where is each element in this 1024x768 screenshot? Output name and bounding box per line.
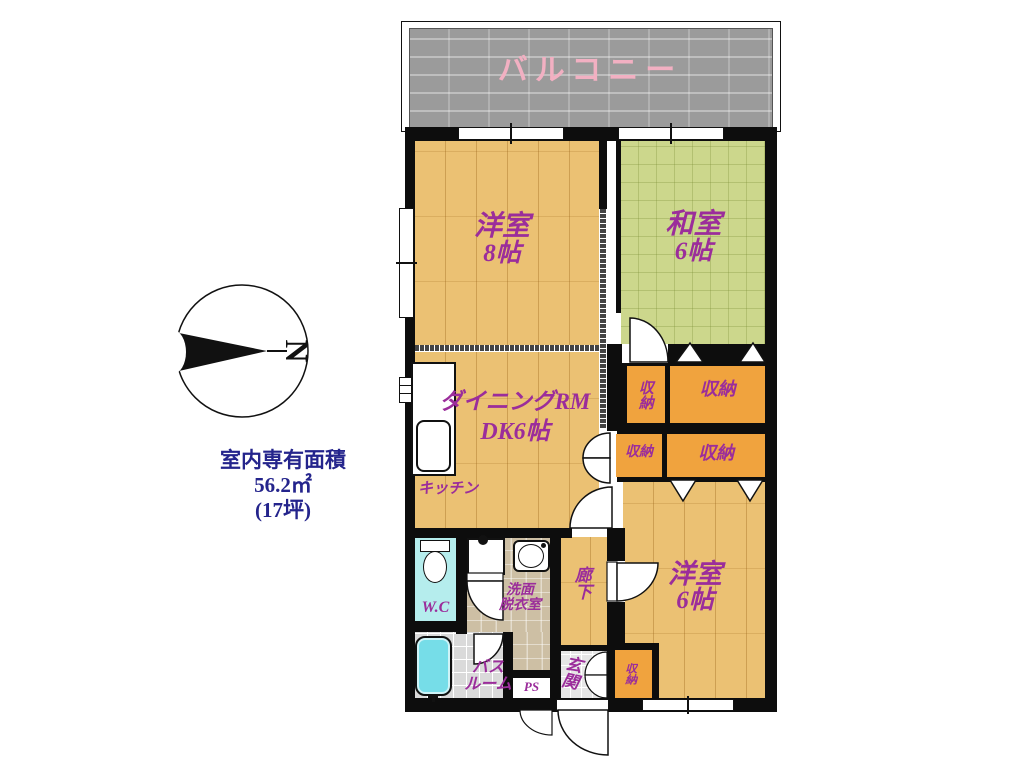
room-japanese-6-name: 和室 (665, 209, 721, 240)
room-western-6-name: 洋室 (668, 559, 722, 589)
door-arc-entrance (558, 710, 608, 755)
storage-3-label: 収納 (616, 446, 662, 461)
door-arc-genkan-bottom (585, 675, 607, 698)
area-title: 室内専有面積 (188, 448, 378, 473)
dining-label: ダイニングRM DK6帖 (425, 390, 605, 445)
door-leaf-washroom (467, 573, 503, 581)
room-western-8-name: 洋室 (474, 211, 530, 242)
storage-4-label: 収納 (667, 444, 765, 463)
plan-overlay: N (0, 0, 1024, 768)
wc-label: W.C (413, 600, 458, 617)
area-size-tsubo: (17坪) (188, 498, 378, 523)
dining-line2: DK6帖 (480, 419, 549, 445)
door-arc-dk-hallway (570, 487, 612, 528)
bifold-triangle-j2 (740, 343, 765, 362)
room-western-8-size: 8帖 (483, 240, 521, 267)
washroom-line2: 脱衣室 (499, 598, 541, 613)
floor-plan: バルコニー (0, 0, 1024, 768)
bathroom-line1: バス (472, 659, 504, 676)
room-western-6-label: 洋室 6帖 (630, 560, 760, 615)
storage-1-label: 収納 (636, 371, 652, 419)
storage-entrance-label: 収納 (624, 655, 637, 694)
area-annotation: 室内専有面積 56.2㎡ (17坪) (188, 448, 378, 524)
room-japanese-6-size: 6帖 (675, 238, 713, 265)
washroom-label: 洗面 脱衣室 (484, 584, 556, 613)
washroom-line1: 洗面 (506, 583, 534, 598)
dining-line1: ダイニングRM (440, 389, 591, 414)
ps-label: PS (513, 680, 550, 694)
bifold-triangle-w2 (737, 480, 763, 501)
hallway-label: 廊下 (572, 558, 590, 608)
door-arc-jroom (630, 318, 668, 362)
bathroom-line2: ルーム (464, 676, 512, 693)
compass-north-label: N (279, 339, 315, 362)
door-arc-genkan-top (585, 652, 607, 675)
door-arc-dk-double-bottom (583, 458, 610, 483)
kitchen-label: キッチン (418, 482, 478, 498)
area-size-sqm: 56.2㎡ (188, 473, 378, 498)
storage-2-label: 収納 (670, 380, 765, 399)
compass-needle-notch (160, 330, 186, 374)
door-leaf-w6 (607, 562, 617, 601)
bifold-triangle-w1 (670, 480, 696, 501)
door-arc-ps-outside (520, 710, 552, 735)
room-western-8-label: 洋室 8帖 (422, 212, 582, 268)
bifold-triangle-j1 (676, 343, 703, 362)
room-japanese-6-label: 和室 6帖 (616, 210, 771, 266)
room-western-6-size: 6帖 (676, 587, 714, 614)
